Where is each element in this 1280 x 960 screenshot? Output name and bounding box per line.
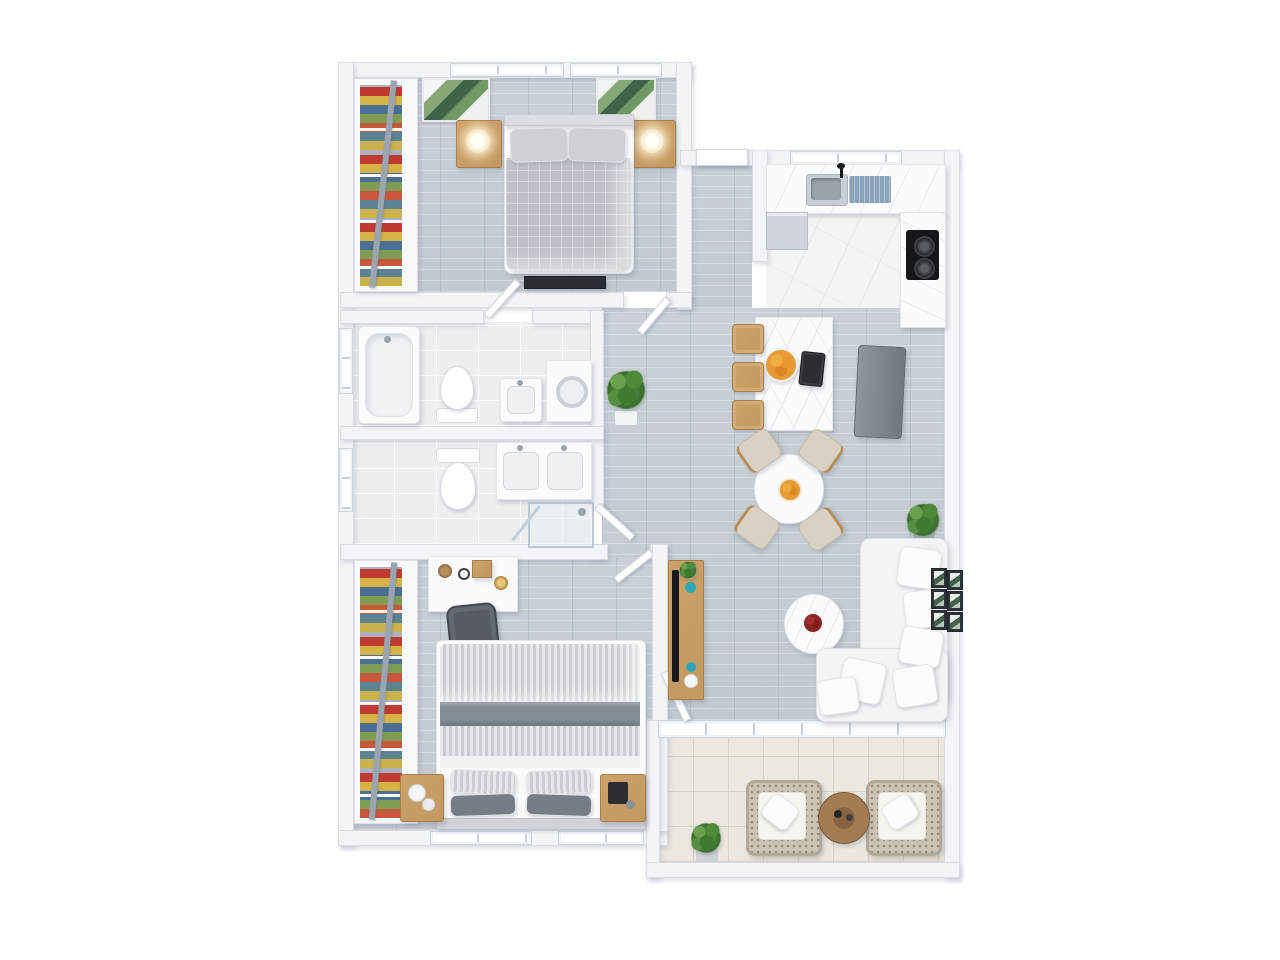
burner-1: [914, 236, 935, 257]
balcony-candle-2: [846, 814, 853, 821]
kitchen-sink-basin: [811, 178, 841, 200]
bed2-striped-mid: [440, 726, 640, 756]
hallway-plant: [604, 366, 648, 414]
apartment-plan: [300, 62, 960, 882]
desk-box: [472, 560, 492, 578]
bar-stool-2: [732, 362, 764, 392]
nightstand-right-decor-2: [626, 800, 635, 809]
fridge: [854, 345, 907, 439]
sofa-pillow-4: [891, 663, 939, 709]
bath-main-sink-basin: [507, 386, 535, 414]
bed2-striped-top: [440, 644, 640, 702]
washer-door: [556, 376, 588, 408]
balcony-candle-1: [834, 810, 842, 818]
wall-bath-right-a: [590, 310, 604, 508]
shower-head: [578, 508, 586, 516]
toilet-main: [440, 366, 474, 410]
wall-balcony-bottom: [646, 862, 960, 878]
lamp-left: [466, 129, 490, 153]
wall-art-left: [422, 78, 490, 122]
bar-stool-3: [732, 400, 764, 430]
front-door: [696, 149, 748, 166]
second-bathroom-window: [339, 448, 353, 512]
toilet-2-tank: [436, 448, 480, 463]
fruit-bowl-island: [764, 348, 798, 382]
desk-candle: [494, 576, 508, 590]
main-bathroom-window: [339, 328, 353, 394]
wall-master-bottom-a: [340, 292, 624, 308]
sofa-pillow-3: [897, 625, 945, 670]
wall-bath-divider: [340, 426, 604, 440]
master-window-2: [570, 63, 662, 77]
wall-master-right: [676, 62, 692, 310]
wall-bath-top-a: [340, 310, 484, 324]
bed2-pillow-dark-right: [526, 793, 593, 817]
bedroom2-window: [430, 831, 532, 845]
floor-plan-render: [0, 0, 1280, 960]
console-decor-teal-2: [686, 662, 696, 672]
kitchen-drainboard: [849, 176, 891, 203]
master-duvet: [506, 158, 630, 270]
dining-fruit-plate: [778, 478, 802, 502]
vanity-basin-right: [547, 452, 583, 490]
bath-main-sink-faucet: [517, 380, 523, 386]
tv: [672, 570, 679, 682]
vanity-basin-left: [503, 452, 539, 490]
kitchen-window: [790, 151, 902, 165]
master-window: [450, 63, 564, 77]
balcony-plant: [688, 820, 724, 856]
gallery-frame-3: [931, 589, 947, 609]
balcony-window-band: [658, 720, 946, 738]
nightstand-right-decor: [608, 782, 628, 804]
burner-2: [914, 258, 935, 279]
coffee-table-flowers: [804, 614, 822, 632]
vanity-faucet-right: [561, 445, 567, 451]
gallery-frame-1: [931, 568, 947, 588]
bedroom2-window-2: [558, 831, 644, 845]
toilet-2: [440, 462, 476, 510]
lamp-right: [640, 129, 664, 153]
wall-balcony-left: [646, 720, 660, 878]
bed2-sheet: [440, 756, 640, 768]
console-plant: [678, 560, 698, 580]
master-pillow-right: [567, 127, 626, 163]
bed2-pillow-striped-right: [526, 769, 593, 795]
desk-plate-2: [458, 568, 470, 580]
kitchen-dishwasher: [766, 212, 808, 250]
bathtub-faucet: [384, 336, 391, 343]
master-pillow-left: [509, 127, 568, 163]
vanity-faucet-left: [517, 445, 523, 451]
bed2-pillow-dark-left: [450, 793, 517, 817]
bed2-blanket: [440, 702, 640, 726]
balcony-side-table: [818, 792, 870, 844]
gallery-frame-4: [947, 591, 963, 611]
bathtub-inner: [365, 333, 413, 417]
hallway-entry-floor: [690, 164, 752, 308]
kitchen-faucet-head: [837, 163, 845, 169]
master-media-bench: [524, 276, 606, 289]
desk-plate-1: [438, 564, 452, 578]
console-decor-white: [684, 674, 698, 688]
bar-stool-1: [732, 324, 764, 354]
gallery-frame-2: [947, 570, 963, 590]
nightstand-left-decor-2: [422, 798, 435, 811]
gallery-frame-5: [931, 610, 947, 630]
coffee-maker: [798, 351, 825, 387]
dining-plant: [904, 500, 942, 540]
toilet-main-tank: [436, 408, 478, 423]
wall-right-outer: [944, 150, 960, 878]
console-decor-teal-1: [685, 582, 696, 593]
master-headboard: [504, 114, 634, 126]
gallery-frame-6: [947, 612, 963, 632]
bed2-pillow-striped-left: [450, 769, 517, 795]
sofa-pillow-6: [816, 675, 861, 716]
